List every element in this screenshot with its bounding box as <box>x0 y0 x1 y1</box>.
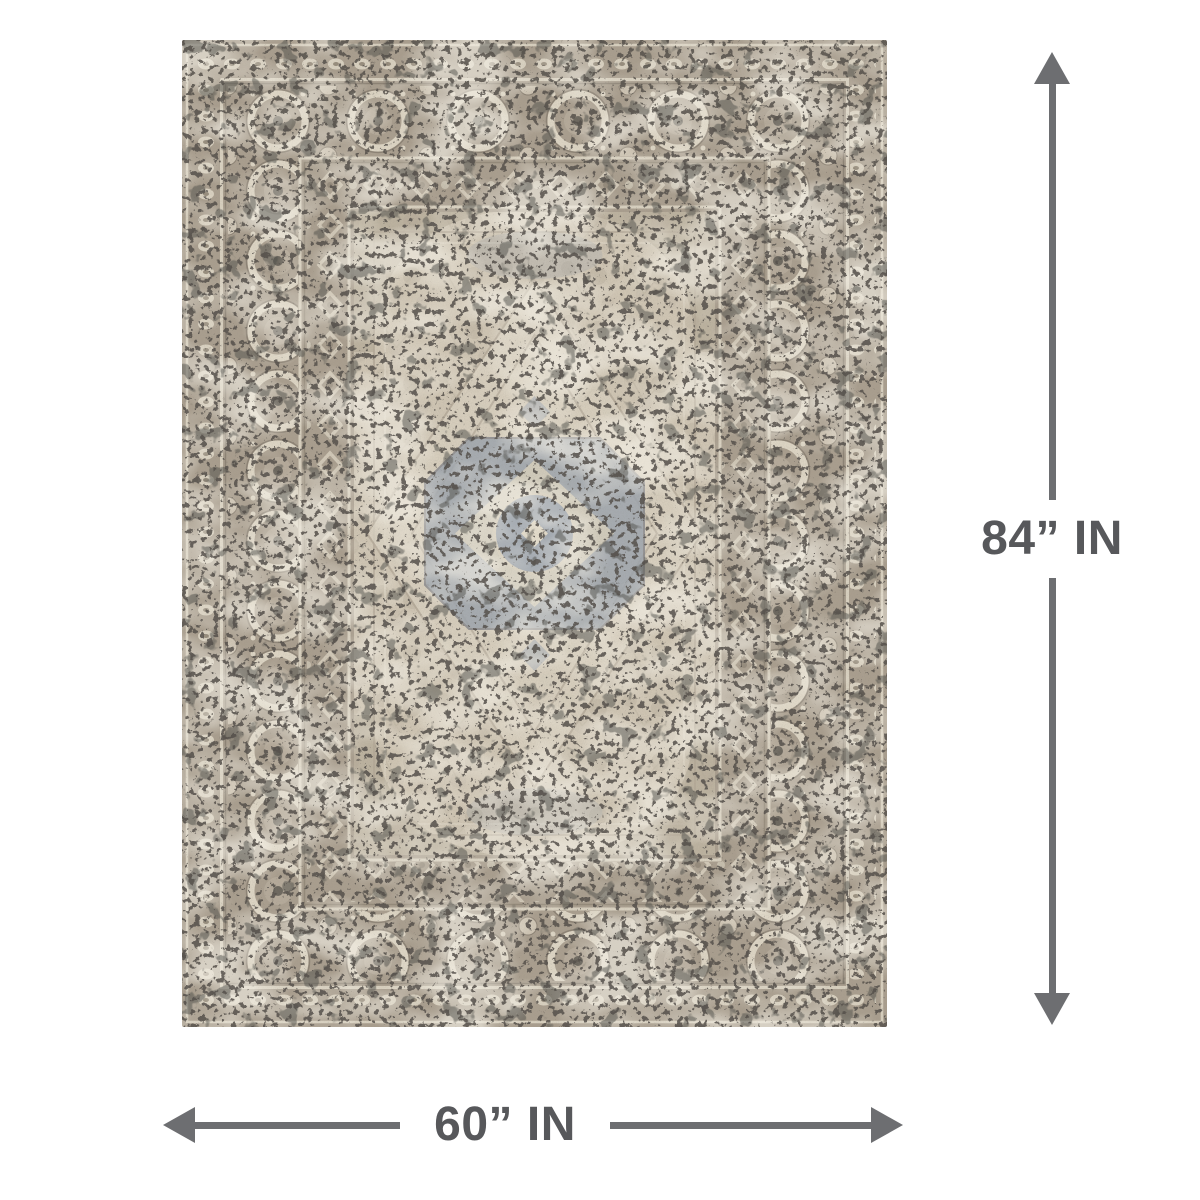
rug-texture-overlay <box>182 40 887 1027</box>
arrow-right-icon <box>871 1107 903 1143</box>
arrow-left-icon <box>163 1107 195 1143</box>
height-dimension-label: 84” IN <box>981 515 1123 563</box>
product-dimension-image: 84” IN 60” IN <box>0 0 1200 1200</box>
width-dimension-annotation: 60” IN <box>163 1107 903 1143</box>
arrow-down-icon <box>1034 993 1070 1025</box>
arrow-up-icon <box>1034 52 1070 84</box>
width-dimension-line-left <box>195 1122 400 1129</box>
width-dimension-line-right <box>610 1122 871 1129</box>
height-dimension-line-top <box>1049 84 1056 500</box>
height-label-gap: 84” IN <box>1034 500 1070 578</box>
width-dimension-label: 60” IN <box>434 1101 576 1149</box>
height-dimension-annotation: 84” IN <box>1034 52 1070 1025</box>
rug-photo <box>182 40 887 1027</box>
height-dimension-line-bottom <box>1049 578 1056 994</box>
width-label-gap: 60” IN <box>400 1107 610 1143</box>
